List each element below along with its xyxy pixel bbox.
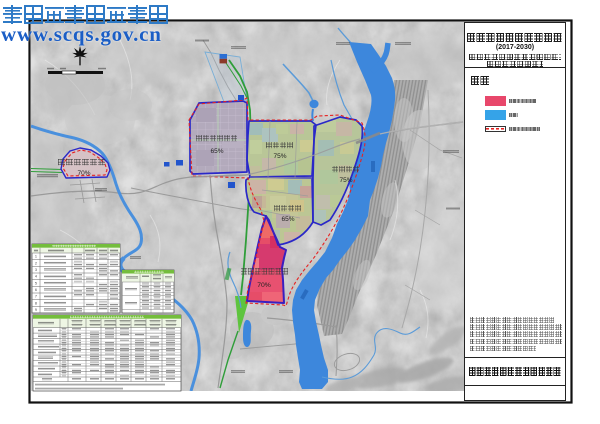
svg-text:6: 6	[35, 288, 37, 292]
svg-text:5: 5	[35, 281, 37, 285]
svg-text:65%: 65%	[281, 216, 294, 223]
svg-text:9: 9	[35, 308, 37, 312]
svg-text:75%: 75%	[339, 177, 352, 184]
svg-text:75%: 75%	[273, 153, 286, 160]
svg-text:2: 2	[35, 261, 37, 265]
svg-text:4: 4	[35, 275, 37, 279]
svg-text:1: 1	[35, 255, 37, 259]
svg-text:7: 7	[35, 295, 37, 299]
svg-text:8: 8	[35, 301, 37, 305]
svg-text:70%: 70%	[77, 170, 90, 177]
svg-text:70%: 70%	[257, 282, 271, 289]
svg-text:65%: 65%	[210, 148, 223, 155]
svg-text:3: 3	[35, 268, 37, 272]
